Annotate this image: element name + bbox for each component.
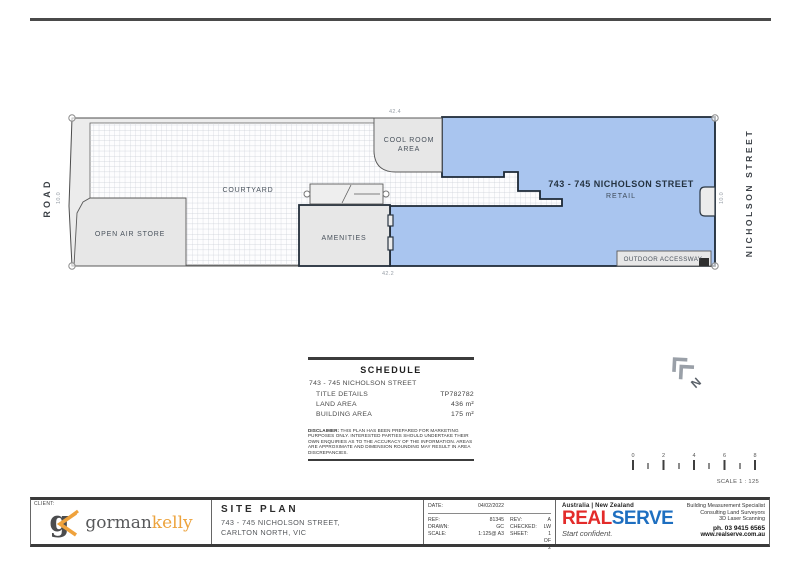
amenities-door-2 — [388, 237, 393, 250]
disclaimer-lead: DISCLAIMER: — [308, 428, 339, 433]
row-label: TITLE DETAILS — [316, 390, 368, 400]
field-drawn-checked: DRAWN: GC CHECKED: LW — [428, 524, 551, 531]
row-value: 175 m² — [451, 410, 474, 420]
site-plan-drawing: COURTYARD COOL ROOM AREA OPEN AIR STORE … — [0, 0, 800, 565]
title-block: CLIENT: g gormankelly SITE PLAN 743 - 74… — [30, 497, 770, 547]
table-row: BUILDING AREA 175 m² — [316, 410, 474, 420]
service-line: Building Measurement Specialist — [687, 503, 765, 510]
row-label: BUILDING AREA — [316, 410, 372, 420]
svg-text:N: N — [688, 375, 704, 391]
field-date: DATE: 04/02/2022 — [428, 503, 551, 514]
dim-left: 10.0 — [56, 192, 62, 204]
retail-subtitle-label: RETAIL — [606, 193, 636, 200]
scale-tick-6: 6 — [723, 453, 726, 459]
dim-top: 42.4 — [389, 109, 401, 115]
schedule-title: SCHEDULE — [308, 365, 474, 375]
phone-number: ph. 03 9415 6565 — [687, 526, 765, 533]
nicholson-street-label: NICHOLSON STREET — [744, 129, 754, 258]
scale-bar — [633, 460, 755, 470]
schedule-table: SCHEDULE 743 - 745 NICHOLSON STREET TITL… — [308, 357, 474, 461]
scale-tick-4: 4 — [692, 453, 695, 459]
schedule-property: 743 - 745 NICHOLSON STREET — [309, 380, 474, 387]
gormankelly-monogram-icon: g — [49, 508, 79, 538]
drawing-fields-section: DATE: 04/02/2022 REF: 81345 REV: A DRAWN… — [423, 500, 555, 544]
field-ref-rev: REF: 81345 REV: A — [428, 517, 551, 524]
scale-tick-2: 2 — [662, 453, 665, 459]
corner-marker — [712, 263, 718, 269]
dim-bottom: 42.2 — [382, 271, 394, 277]
gormankelly-wordmark: gormankelly — [85, 513, 192, 533]
gormankelly-logo: g gormankelly — [31, 508, 211, 538]
corner-marker — [69, 263, 75, 269]
scale-tick-0: 0 — [631, 453, 634, 459]
realserve-contact-block: Building Measurement Specialist Consulti… — [687, 503, 765, 539]
cool-room-label-1: COOL ROOM — [384, 137, 435, 144]
scale-tick-8: 8 — [753, 453, 756, 459]
cool-room-label-2: AREA — [398, 146, 420, 153]
cool-room-area — [374, 118, 442, 172]
corner-marker — [69, 115, 75, 121]
amenities-door-1 — [388, 215, 393, 226]
dim-right: 10.0 — [719, 192, 725, 204]
table-row: LAND AREA 436 m² — [316, 400, 474, 410]
road-label: ROAD — [42, 178, 52, 217]
drawing-title-section: SITE PLAN 743 - 745 NICHOLSON STREET, CA… — [211, 500, 423, 544]
retail-title-label: 743 - 745 NICHOLSON STREET — [548, 179, 694, 189]
website-url: www.realserve.com.au — [687, 532, 765, 539]
courtyard-label: COURTYARD — [223, 187, 274, 194]
scale-label: SCALE 1 : 125 — [717, 479, 759, 485]
client-section: CLIENT: g gormankelly — [31, 500, 211, 544]
row-label: LAND AREA — [316, 400, 357, 410]
row-value: TP782782 — [440, 390, 474, 400]
drawing-title: SITE PLAN — [221, 504, 423, 515]
table-row: TITLE DETAILS TP782782 — [316, 390, 474, 400]
boundary-notch — [700, 187, 715, 216]
amenities-label: AMENITIES — [322, 235, 367, 242]
disclaimer-text: DISCLAIMER: THIS PLAN HAS BEEN PREPARED … — [308, 428, 474, 455]
corner-marker — [712, 115, 718, 121]
realserve-section: Australia | New Zealand REALSERVE Start … — [555, 500, 769, 544]
field-scale-sheet: SCALE: 1:125@ A3 SHEET: 1 OF 2 — [428, 531, 551, 552]
row-value: 436 m² — [451, 400, 474, 410]
drawing-address: 743 - 745 NICHOLSON STREET, CARLTON NORT… — [221, 518, 423, 537]
outdoor-accessway-label: OUTDOOR ACCESSWAY — [624, 256, 703, 263]
site-plan-sheet: COURTYARD COOL ROOM AREA OPEN AIR STORE … — [0, 0, 800, 565]
north-arrow-icon: N — [668, 353, 707, 394]
pergola-structure — [304, 184, 389, 204]
open-air-store-label: OPEN AIR STORE — [95, 231, 165, 238]
service-line: Consulting Land Surveyors — [687, 510, 765, 517]
service-line: 3D Laser Scanning — [687, 516, 765, 523]
